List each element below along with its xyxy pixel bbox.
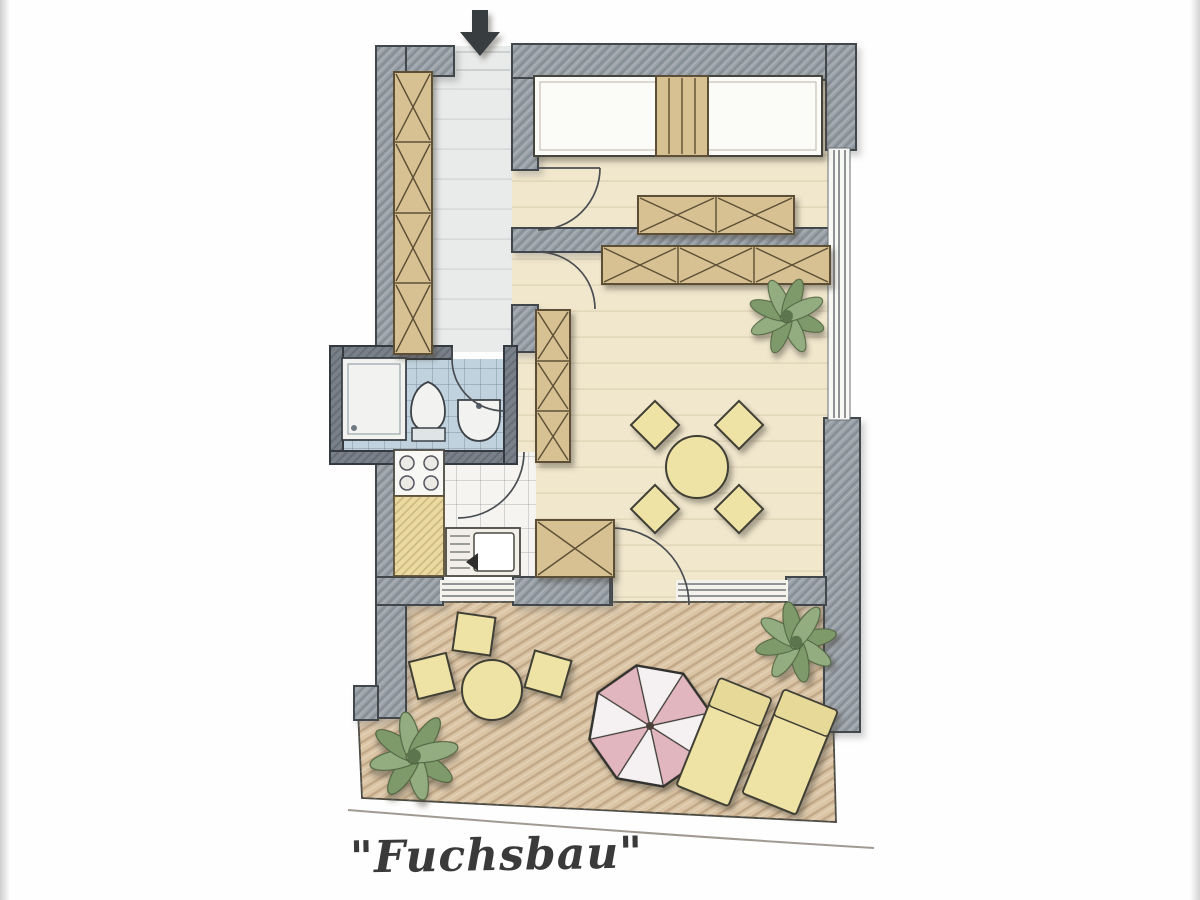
burner bbox=[424, 476, 438, 490]
living-cabinet bbox=[536, 520, 614, 577]
toilet-tank bbox=[412, 428, 445, 441]
floor-plan-page: "Fuchsbau" bbox=[0, 0, 1200, 900]
left-wall-step bbox=[354, 686, 378, 720]
terrace-table bbox=[462, 660, 522, 720]
right-wall-top bbox=[826, 44, 856, 150]
kitchen-counter-hatch bbox=[394, 496, 444, 576]
burner bbox=[400, 456, 414, 470]
hall-living-wall bbox=[512, 305, 538, 352]
kitchen-terrace-wall bbox=[376, 577, 443, 605]
bathroom-wall-top bbox=[330, 346, 452, 359]
double-bed bbox=[534, 76, 822, 156]
bathroom bbox=[330, 346, 517, 464]
dining-table bbox=[666, 436, 728, 498]
right-wall-bottom bbox=[824, 418, 860, 732]
hall-wardrobe bbox=[394, 72, 432, 354]
living-wardrobe bbox=[536, 310, 570, 462]
top-wall-right bbox=[512, 44, 856, 80]
bathroom-wall-left bbox=[330, 346, 343, 464]
terrace-chair bbox=[453, 613, 496, 656]
stove bbox=[394, 450, 444, 496]
kitchen-sink-basin bbox=[474, 533, 514, 571]
plan-title: "Fuchsbau" bbox=[350, 827, 644, 883]
burner bbox=[400, 476, 414, 490]
terrace-chair bbox=[409, 653, 455, 699]
living-sideboard bbox=[602, 246, 830, 284]
living-terrace-wall-right bbox=[786, 577, 826, 605]
burner bbox=[424, 456, 438, 470]
shower-drain bbox=[351, 425, 357, 431]
bedroom-sideboard bbox=[638, 196, 794, 234]
bathroom-wall-right bbox=[504, 346, 517, 464]
floor-plan-drawing bbox=[0, 0, 1200, 900]
living-terrace-wall-left bbox=[513, 577, 612, 605]
